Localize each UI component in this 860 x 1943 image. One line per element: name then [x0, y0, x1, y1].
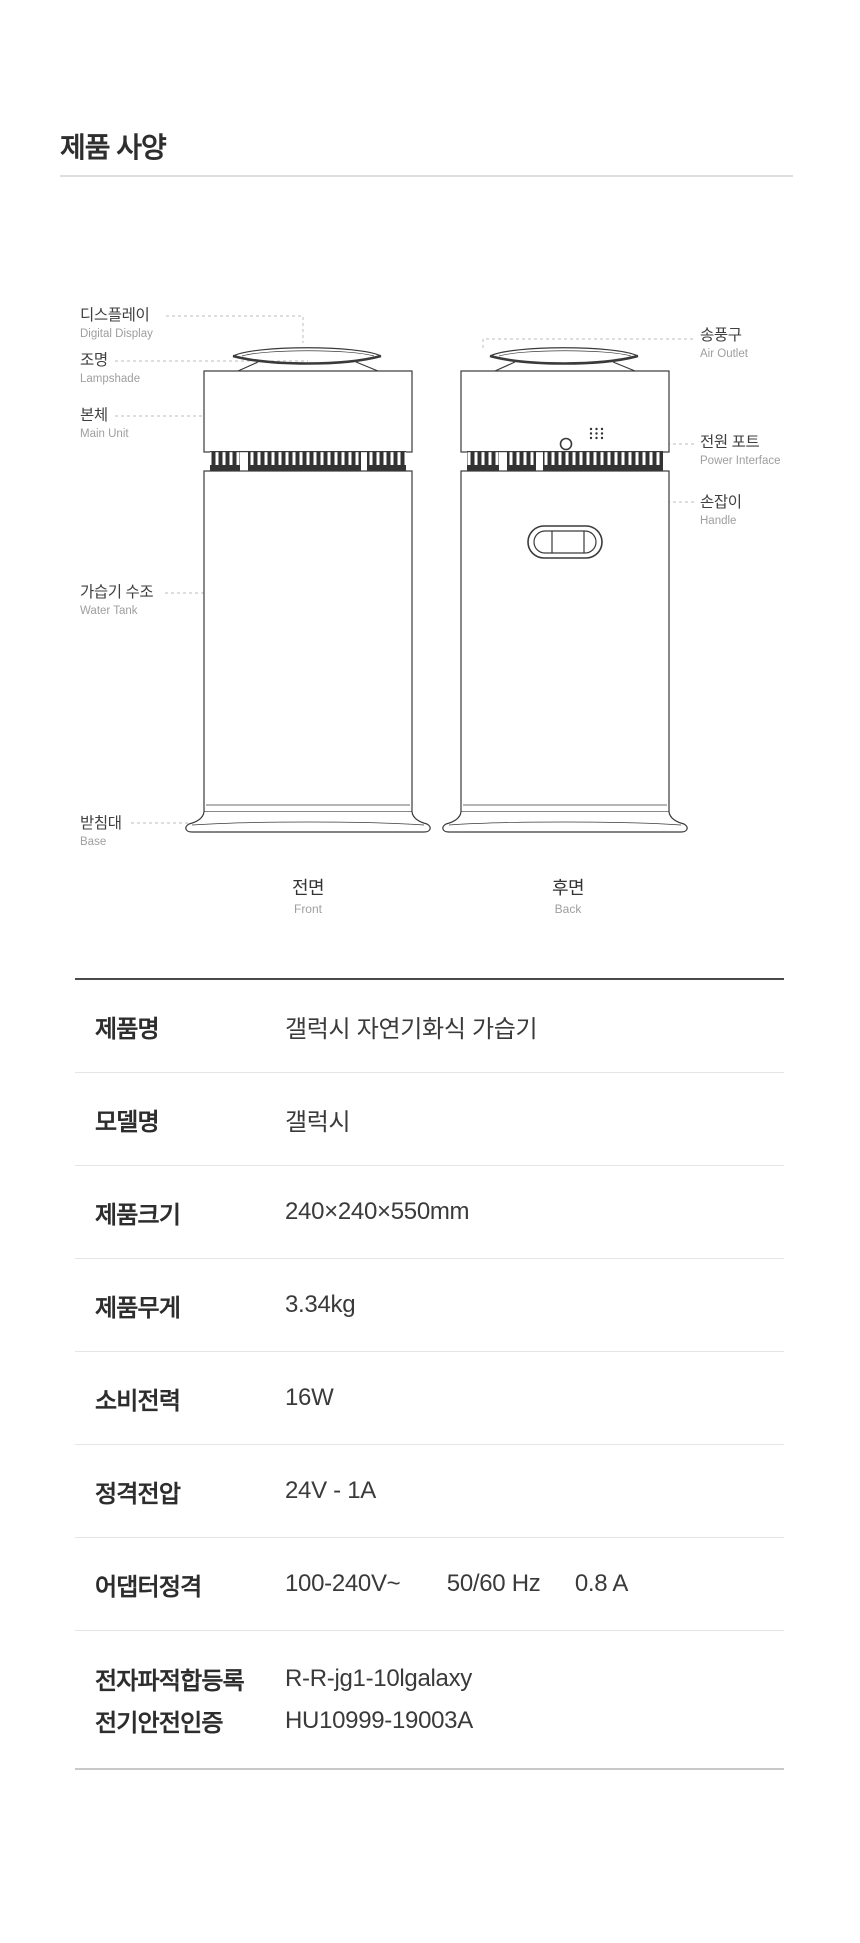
label-lampshade-en: Lampshade: [80, 372, 140, 386]
caption-back-ko: 후면: [518, 877, 618, 899]
table-row-adapter-rating: 어댑터정격 100-240V~ 50/60 Hz 0.8 A: [75, 1538, 784, 1631]
product-spec-page: 제품 사양: [0, 0, 860, 1943]
spec-value: 24V - 1A: [285, 1477, 376, 1505]
spec-label: 어댑터정격: [95, 1567, 285, 1602]
spec-label: 소비전력: [95, 1381, 285, 1416]
spec-label: 제품무게: [95, 1288, 285, 1323]
label-handle: 손잡이 Handle: [700, 493, 742, 528]
label-main-unit-en: Main Unit: [80, 427, 129, 441]
spec-label: 정격전압: [95, 1474, 285, 1509]
adapter-frequency: 50/60 Hz: [447, 1570, 541, 1597]
table-row-product-size: 제품크기 240×240×550mm: [75, 1166, 784, 1259]
spec-value: R-R-jg1-10lgalaxy: [285, 1665, 472, 1693]
label-main-unit: 본체 Main Unit: [80, 406, 129, 441]
spec-value: 3.34kg: [285, 1291, 355, 1319]
adapter-current: 0.8 A: [575, 1570, 628, 1597]
label-power-port-ko: 전원 포트: [700, 433, 781, 452]
caption-front-ko: 전면: [258, 877, 358, 899]
label-base: 받침대 Base: [80, 814, 122, 849]
label-water-tank: 가습기 수조 Water Tank: [80, 583, 153, 618]
table-row-product-name: 제품명 갤럭시 자연기화식 가습기: [75, 980, 784, 1073]
front-base: [186, 812, 430, 832]
back-lower-body: [461, 471, 669, 812]
label-digital-display: 디스플레이 Digital Display: [80, 306, 153, 341]
spec-label: 전자파적합등록: [95, 1661, 285, 1696]
label-lampshade: 조명 Lampshade: [80, 351, 140, 386]
spec-label: 모델명: [95, 1102, 285, 1137]
product-diagram: [0, 0, 860, 950]
spec-label: 전기안전인증: [95, 1703, 285, 1738]
spec-value: 240×240×550mm: [285, 1198, 469, 1226]
table-row-certifications: 전자파적합등록 R-R-jg1-10lgalaxy 전기안전인증 HU10999…: [75, 1631, 784, 1768]
label-handle-ko: 손잡이: [700, 493, 742, 512]
label-power-port-en: Power Interface: [700, 454, 781, 468]
spec-value: 16W: [285, 1384, 333, 1412]
label-water-tank-ko: 가습기 수조: [80, 583, 153, 602]
label-handle-en: Handle: [700, 514, 742, 528]
handle: [528, 526, 602, 558]
table-row-product-weight: 제품무게 3.34kg: [75, 1259, 784, 1352]
label-air-outlet: 송풍구 Air Outlet: [700, 326, 748, 361]
main-unit-body: [204, 371, 412, 452]
back-grille: [467, 451, 663, 471]
back-upper-body: [461, 371, 669, 452]
label-digital-display-en: Digital Display: [80, 327, 153, 341]
spec-table: 제품명 갤럭시 자연기화식 가습기 모델명 갤럭시 제품크기 240×240×5…: [75, 978, 784, 1770]
label-base-en: Base: [80, 835, 122, 849]
caption-back: 후면 Back: [518, 877, 618, 917]
safety-certification-line: 전기안전인증 HU10999-19003A: [95, 1703, 784, 1738]
table-row-rated-voltage: 정격전압 24V - 1A: [75, 1445, 784, 1538]
back-base: [443, 812, 687, 832]
front-view: [186, 348, 430, 832]
spec-value: 갤럭시: [285, 1102, 350, 1137]
label-main-unit-ko: 본체: [80, 406, 129, 425]
lampshade-disc: [233, 348, 381, 371]
caption-front: 전면 Front: [258, 877, 358, 917]
front-grille: [210, 451, 406, 471]
adapter-voltage: 100-240V~: [285, 1570, 400, 1597]
emc-registration-line: 전자파적합등록 R-R-jg1-10lgalaxy: [95, 1661, 784, 1696]
spec-value: 갤럭시 자연기화식 가습기: [285, 1009, 537, 1044]
label-lampshade-ko: 조명: [80, 351, 140, 370]
air-outlet-disc: [490, 348, 638, 371]
spec-value: 100-240V~ 50/60 Hz 0.8 A: [285, 1570, 628, 1598]
water-tank-body: [204, 471, 412, 812]
label-water-tank-en: Water Tank: [80, 604, 153, 618]
label-air-outlet-ko: 송풍구: [700, 326, 748, 345]
label-air-outlet-en: Air Outlet: [700, 347, 748, 361]
spec-value: HU10999-19003A: [285, 1707, 473, 1735]
caption-back-en: Back: [518, 902, 618, 917]
caption-front-en: Front: [258, 902, 358, 917]
table-row-power-consumption: 소비전력 16W: [75, 1352, 784, 1445]
spec-label: 제품명: [95, 1009, 285, 1044]
spec-label: 제품크기: [95, 1195, 285, 1230]
label-base-ko: 받침대: [80, 814, 122, 833]
label-digital-display-ko: 디스플레이: [80, 306, 153, 325]
label-power-port: 전원 포트 Power Interface: [700, 433, 781, 468]
table-row-model-name: 모델명 갤럭시: [75, 1073, 784, 1166]
back-view: [443, 348, 687, 832]
